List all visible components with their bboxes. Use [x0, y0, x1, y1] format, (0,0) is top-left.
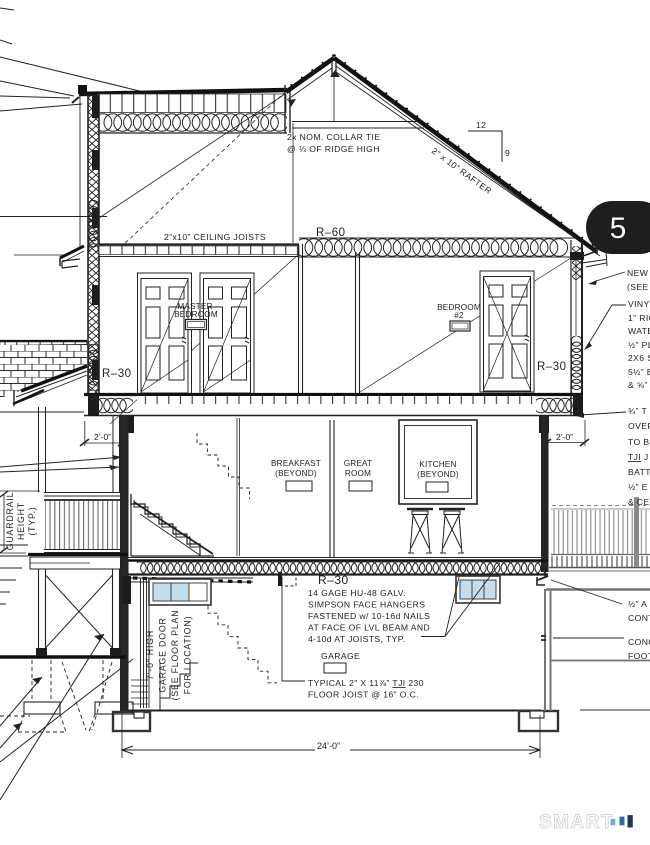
svg-text:R–30: R–30	[318, 573, 349, 587]
svg-text:7’-0” HIGH: 7’-0” HIGH	[145, 630, 155, 680]
svg-text:ROOM: ROOM	[345, 469, 371, 478]
svg-text:2x NOM. COLLAR TIE: 2x NOM. COLLAR TIE	[287, 132, 380, 142]
svg-text:BEDROOM: BEDROOM	[174, 310, 218, 319]
svg-text:TYPICAL 2” X 11⅞” TJI 230: TYPICAL 2” X 11⅞” TJI 230	[308, 678, 424, 688]
svg-text:FASTENED w/ 10-16d NAILS: FASTENED w/ 10-16d NAILS	[308, 611, 430, 621]
svg-text:NEW R: NEW R	[627, 268, 650, 278]
svg-text:½” PL: ½” PL	[628, 340, 650, 350]
svg-text:SMART: SMART	[539, 812, 614, 833]
svg-text:5½” B: 5½” B	[628, 367, 650, 377]
svg-text:(BEYOND): (BEYOND)	[417, 470, 459, 479]
svg-text:GREAT: GREAT	[344, 459, 373, 468]
svg-text:AT FACE OF LVL BEAM AND: AT FACE OF LVL BEAM AND	[308, 623, 430, 633]
svg-text:12: 12	[476, 120, 486, 130]
svg-text:KITCHEN: KITCHEN	[419, 460, 456, 469]
svg-text:OVER: OVER	[628, 421, 650, 431]
svg-text:CONC: CONC	[628, 637, 650, 647]
svg-text:½” A: ½” A	[628, 599, 647, 609]
svg-text:BREAKFAST: BREAKFAST	[271, 459, 321, 468]
svg-text:& ⅝”: & ⅝”	[628, 380, 648, 390]
svg-text:VINYL: VINYL	[628, 299, 650, 309]
svg-text:5: 5	[610, 212, 627, 245]
svg-text:2’-0”: 2’-0”	[94, 432, 111, 442]
svg-text:R–30: R–30	[102, 368, 132, 380]
svg-text:(TYP.): (TYP.)	[27, 506, 37, 535]
svg-text:& CE: & CE	[628, 497, 650, 507]
svg-text:GUARDRAIL: GUARDRAIL	[5, 492, 15, 551]
svg-text:2”x10” CEILING JOISTS: 2”x10” CEILING JOISTS	[164, 232, 266, 242]
svg-text:¾” T: ¾” T	[628, 406, 647, 416]
svg-text:2’-0”: 2’-0”	[556, 432, 573, 442]
svg-text:(SEE FLOOR PLAN: (SEE FLOOR PLAN	[170, 610, 180, 701]
svg-text:R–30: R–30	[537, 361, 567, 373]
svg-text:2X6 S: 2X6 S	[628, 353, 650, 363]
svg-text:1” RIG: 1” RIG	[628, 313, 650, 323]
svg-text:4-10d AT JOISTS, TYP.: 4-10d AT JOISTS, TYP.	[308, 634, 406, 644]
svg-text:(BEYOND): (BEYOND)	[275, 469, 317, 478]
svg-text:WATER: WATER	[628, 326, 650, 336]
svg-text:#2: #2	[454, 311, 464, 320]
svg-text:9: 9	[505, 148, 510, 158]
svg-text:(SEE D: (SEE D	[627, 282, 650, 292]
svg-text:HEIGHT: HEIGHT	[16, 502, 26, 540]
svg-text:CONT: CONT	[628, 613, 650, 623]
svg-text:TJI J: TJI J	[628, 452, 649, 462]
svg-text:GARAGE DOOR: GARAGE DOOR	[158, 617, 168, 692]
svg-text:@ ⅓ OF RIDGE HIGH: @ ⅓ OF RIDGE HIGH	[287, 144, 380, 154]
svg-text:½” E: ½” E	[628, 482, 648, 492]
svg-text:BATT: BATT	[628, 467, 650, 477]
svg-text:GARAGE: GARAGE	[321, 651, 360, 661]
svg-text:24’-0”: 24’-0”	[317, 741, 340, 751]
svg-text:R–60: R–60	[316, 227, 346, 239]
svg-text:FOR LOCATION): FOR LOCATION)	[183, 616, 193, 695]
svg-text:14 GAGE HU-48 GALV.: 14 GAGE HU-48 GALV.	[308, 588, 406, 598]
svg-text:FLOOR JOIST @ 16” O.C.: FLOOR JOIST @ 16” O.C.	[308, 690, 419, 700]
svg-text:SIMPSON FACE HANGERS: SIMPSON FACE HANGERS	[308, 600, 425, 610]
svg-text:FOOT: FOOT	[628, 651, 650, 661]
svg-text:TO B: TO B	[628, 437, 650, 447]
